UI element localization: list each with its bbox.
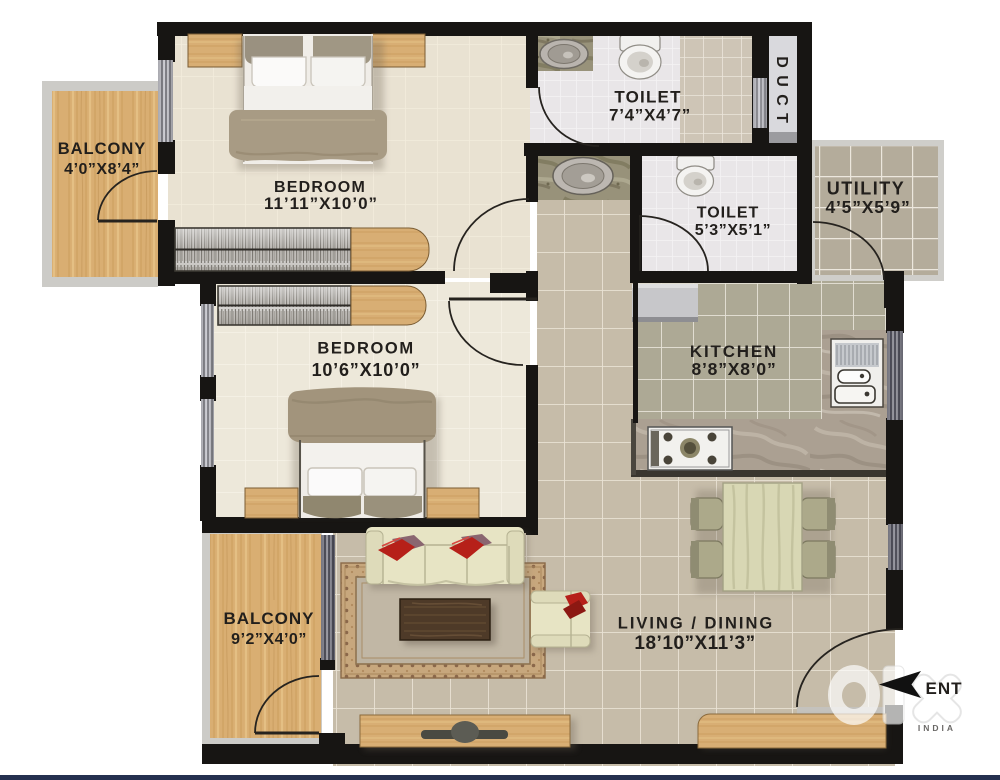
svg-text:4’0”X8’4”: 4’0”X8’4” — [64, 161, 140, 178]
svg-text:UTILITY: UTILITY — [827, 179, 906, 199]
svg-text:D: D — [773, 56, 790, 68]
svg-text:18’10”X11’3”: 18’10”X11’3” — [634, 633, 755, 654]
svg-text:BALCONY: BALCONY — [223, 609, 314, 628]
svg-text:BALCONY: BALCONY — [58, 140, 147, 158]
svg-text:INDIA: INDIA — [918, 723, 956, 733]
svg-text:5’3”X5’1”: 5’3”X5’1” — [695, 222, 772, 239]
svg-text:7’4”X4’7”: 7’4”X4’7” — [609, 106, 691, 125]
svg-text:11’11”X10’0”: 11’11”X10’0” — [264, 194, 378, 213]
svg-text:TOILET: TOILET — [697, 205, 760, 222]
svg-text:10’6”X10’0”: 10’6”X10’0” — [312, 360, 421, 380]
svg-text:TOILET: TOILET — [614, 88, 681, 107]
svg-text:T: T — [773, 113, 790, 123]
svg-text:4’5”X5’9”: 4’5”X5’9” — [825, 197, 910, 217]
svg-text:U: U — [773, 75, 790, 87]
svg-text:BEDROOM: BEDROOM — [317, 340, 414, 358]
svg-text:9’2”X4’0”: 9’2”X4’0” — [231, 631, 307, 648]
svg-text:C: C — [773, 94, 790, 106]
svg-text:ENT: ENT — [926, 679, 963, 698]
svg-text:LIVING / DINING: LIVING / DINING — [618, 615, 775, 633]
svg-text:8’8”X8’0”: 8’8”X8’0” — [691, 359, 776, 379]
